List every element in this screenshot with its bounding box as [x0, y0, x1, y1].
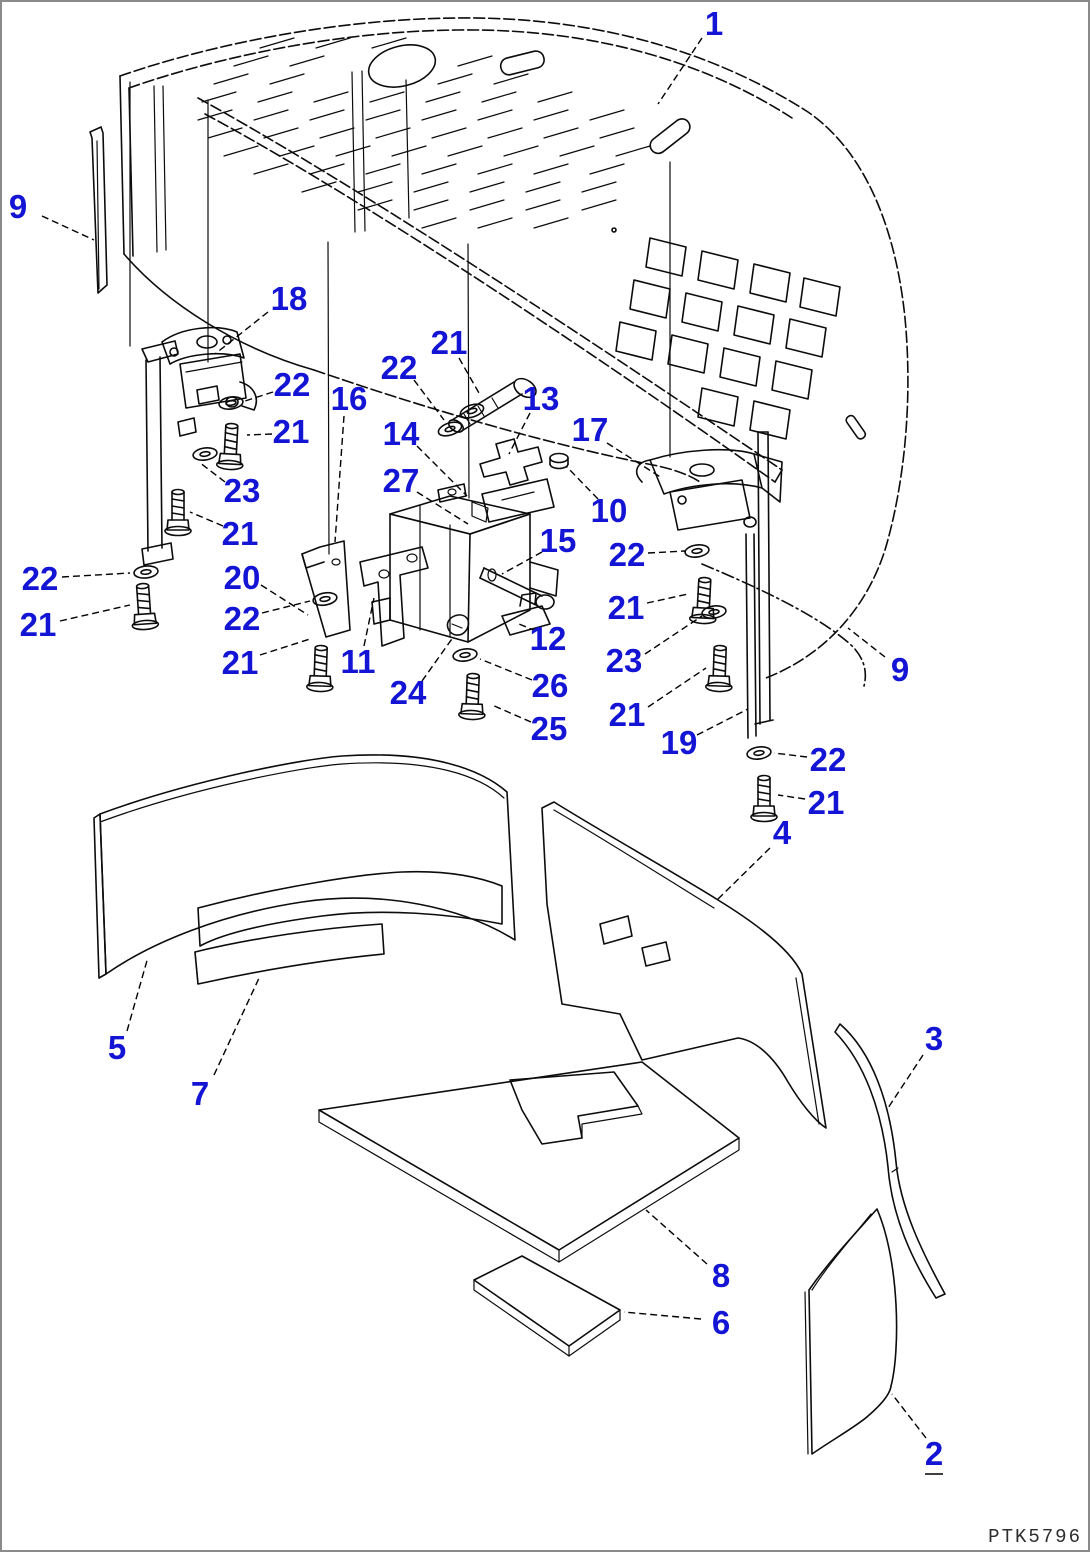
part-5-panel — [94, 755, 515, 978]
callout-7: 7 — [191, 976, 260, 1112]
callout-21: 21 — [247, 413, 309, 450]
callout-label: 8 — [712, 1257, 730, 1294]
callout-label: 4 — [773, 814, 792, 851]
callout-label: 23 — [224, 472, 261, 509]
parts-diagram-page: 1918222116222113141727102321152220222122… — [0, 0, 1090, 1552]
callout-layer: 1918222116222113141727102321152220222122… — [9, 5, 943, 1474]
callout-22: 22 — [609, 536, 685, 573]
callout-24: 24 — [390, 636, 454, 711]
callout-label: 19 — [661, 724, 698, 761]
leader-line — [892, 1394, 926, 1438]
callout-8: 8 — [646, 1210, 730, 1294]
callout-label: 21 — [20, 606, 57, 643]
callout-label: 15 — [540, 522, 577, 559]
callout-label: 25 — [531, 710, 568, 747]
callout-label: 21 — [273, 413, 310, 450]
callout-label: 21 — [609, 696, 646, 733]
callout-label: 22 — [224, 600, 261, 637]
leader-line — [492, 705, 531, 722]
leader-line — [214, 976, 260, 1075]
callout-label: 22 — [381, 349, 418, 386]
leader-line — [645, 616, 702, 654]
leader-line — [658, 38, 702, 104]
leader-line — [648, 551, 685, 553]
leader-line — [647, 594, 688, 603]
callout-label: 21 — [431, 324, 468, 361]
callout-22: 22 — [245, 366, 310, 403]
callout-4: 4 — [717, 814, 792, 900]
callout-label: 21 — [808, 784, 845, 821]
callout-9: 9 — [9, 188, 94, 240]
part-6-pad — [474, 1256, 620, 1356]
callout-25: 25 — [492, 705, 567, 747]
callout-label: 12 — [530, 620, 567, 657]
leader-line — [335, 416, 344, 542]
part-20-bracket-strip — [142, 341, 196, 565]
leader-line — [646, 1210, 707, 1264]
callout-label: 23 — [606, 642, 643, 679]
leader-line — [624, 1312, 701, 1319]
callout-label: 11 — [341, 643, 376, 680]
callout-10: 10 — [566, 466, 627, 529]
leader-line — [509, 413, 530, 454]
callout-21: 21 — [20, 605, 130, 643]
callout-26: 26 — [480, 659, 568, 704]
callout-16: 16 — [331, 380, 368, 542]
callout-21: 21 — [608, 589, 688, 626]
leader-line — [245, 392, 273, 401]
callout-label: 14 — [383, 415, 420, 452]
callout-label: 27 — [383, 462, 420, 499]
leader-line — [648, 668, 706, 707]
leader-line — [778, 795, 805, 799]
callout-9: 9 — [848, 628, 909, 688]
callout-6: 6 — [624, 1304, 730, 1341]
callout-19: 19 — [661, 709, 748, 761]
callout-label: 21 — [608, 589, 645, 626]
callout-22: 22 — [224, 600, 310, 637]
callout-22: 22 — [22, 560, 130, 597]
part-8-floor-panel — [319, 1062, 739, 1262]
leader-line — [247, 434, 272, 435]
leader-line — [60, 605, 130, 621]
part-15-rod — [480, 568, 554, 609]
callout-label: 13 — [523, 380, 560, 417]
leader-line — [480, 659, 532, 680]
callout-label: 9 — [891, 651, 909, 688]
callout-label: 2 — [925, 1435, 943, 1472]
callout-15: 15 — [502, 522, 576, 574]
callout-21: 21 — [190, 512, 258, 552]
leader-line — [127, 957, 148, 1031]
leader-line — [888, 1055, 923, 1108]
leader-line — [261, 585, 308, 615]
part-24-clip — [447, 615, 468, 635]
leader-line — [414, 380, 444, 420]
leader-line — [42, 216, 94, 240]
callout-11: 11 — [341, 598, 376, 680]
leader-line — [422, 636, 454, 681]
callout-label: 18 — [271, 280, 308, 317]
leader-line — [848, 628, 885, 657]
callout-label: 24 — [390, 674, 427, 711]
callout-22: 22 — [774, 741, 846, 778]
part-16-bracket — [302, 541, 350, 637]
part-17-latch — [637, 450, 782, 530]
callout-label: 6 — [712, 1304, 730, 1341]
leader-line — [199, 462, 225, 482]
callout-label: 7 — [191, 1075, 209, 1112]
part-7-strip — [195, 872, 502, 984]
callout-label: 10 — [591, 492, 628, 529]
leader-line — [62, 573, 130, 577]
diagram-artwork: 1918222116222113141727102321152220222122… — [2, 2, 1090, 1552]
callout-5: 5 — [108, 957, 148, 1066]
callout-label: 1 — [705, 5, 723, 42]
part-11-bracket — [360, 547, 428, 646]
callout-label: 26 — [532, 667, 569, 704]
callout-label: 17 — [572, 411, 609, 448]
part-9-left-strip — [90, 127, 107, 293]
callout-label: 22 — [609, 536, 646, 573]
callout-label: 22 — [274, 366, 311, 403]
callout-2: 2 — [892, 1394, 943, 1474]
callout-12: 12 — [519, 620, 566, 657]
callout-label: 21 — [222, 644, 259, 681]
callout-3: 3 — [888, 1020, 943, 1108]
callout-label: 22 — [22, 560, 59, 597]
part-2-panel — [805, 1209, 897, 1454]
callout-17: 17 — [572, 411, 662, 478]
callout-label: 21 — [222, 515, 259, 552]
callout-label: 20 — [224, 559, 261, 596]
callout-label: 22 — [810, 741, 847, 778]
leader-line — [717, 848, 770, 900]
drawing-code: PTK5796 — [988, 1526, 1082, 1548]
callout-label: 16 — [331, 380, 368, 417]
callout-label: 3 — [925, 1020, 943, 1057]
callout-21: 21 — [222, 639, 310, 681]
leader-line — [774, 753, 807, 757]
callout-label: 5 — [108, 1029, 126, 1066]
part-18-latch — [162, 328, 256, 410]
leader-line — [697, 709, 748, 735]
leader-line — [190, 512, 223, 526]
part-20-center-box — [372, 484, 558, 642]
callout-21: 21 — [431, 324, 479, 393]
callout-18: 18 — [215, 280, 307, 354]
callout-label: 9 — [9, 188, 27, 225]
leader-line — [260, 639, 310, 655]
